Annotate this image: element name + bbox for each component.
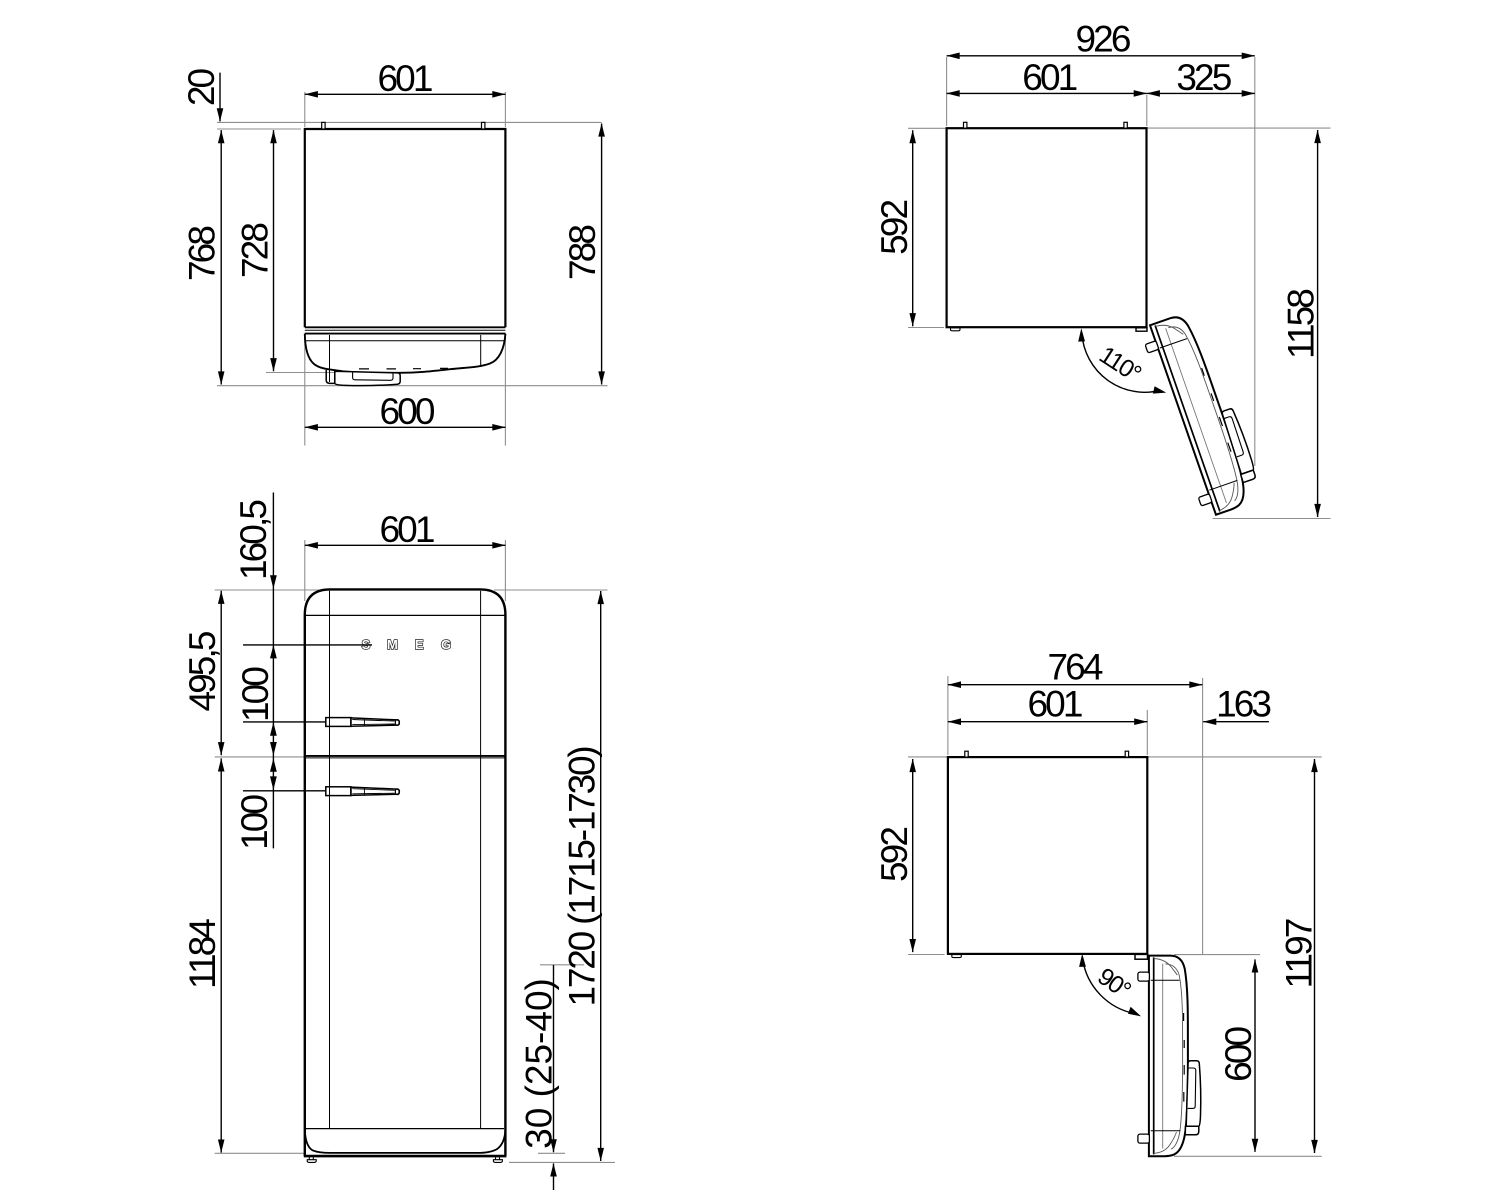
svg-text:600: 600	[1218, 1026, 1259, 1081]
svg-text:160,5: 160,5	[233, 500, 274, 580]
svg-text:728: 728	[235, 224, 276, 278]
svg-text:601: 601	[379, 509, 433, 550]
svg-text:20: 20	[181, 69, 222, 107]
svg-text:325: 325	[1176, 57, 1231, 98]
svg-text:100: 100	[235, 667, 276, 722]
svg-text:601: 601	[1027, 684, 1081, 725]
svg-text:601: 601	[1022, 57, 1076, 98]
svg-text:764: 764	[1047, 647, 1102, 688]
svg-text:1158: 1158	[1281, 290, 1322, 359]
svg-text:592: 592	[874, 828, 915, 882]
svg-text:601: 601	[377, 58, 431, 99]
svg-text:100: 100	[234, 795, 275, 850]
svg-text:788: 788	[562, 226, 603, 280]
svg-text:926: 926	[1075, 18, 1129, 59]
svg-text:163: 163	[1216, 684, 1270, 725]
svg-text:592: 592	[874, 201, 915, 255]
svg-text:1184: 1184	[182, 919, 223, 989]
svg-text:600: 600	[379, 391, 434, 432]
svg-text:30 (25-40): 30 (25-40)	[519, 978, 560, 1149]
svg-text:1197: 1197	[1279, 919, 1320, 988]
svg-text:1720 (1715-1730): 1720 (1715-1730)	[562, 747, 603, 1007]
svg-text:768: 768	[182, 227, 223, 281]
svg-text:495,5: 495,5	[182, 631, 223, 711]
